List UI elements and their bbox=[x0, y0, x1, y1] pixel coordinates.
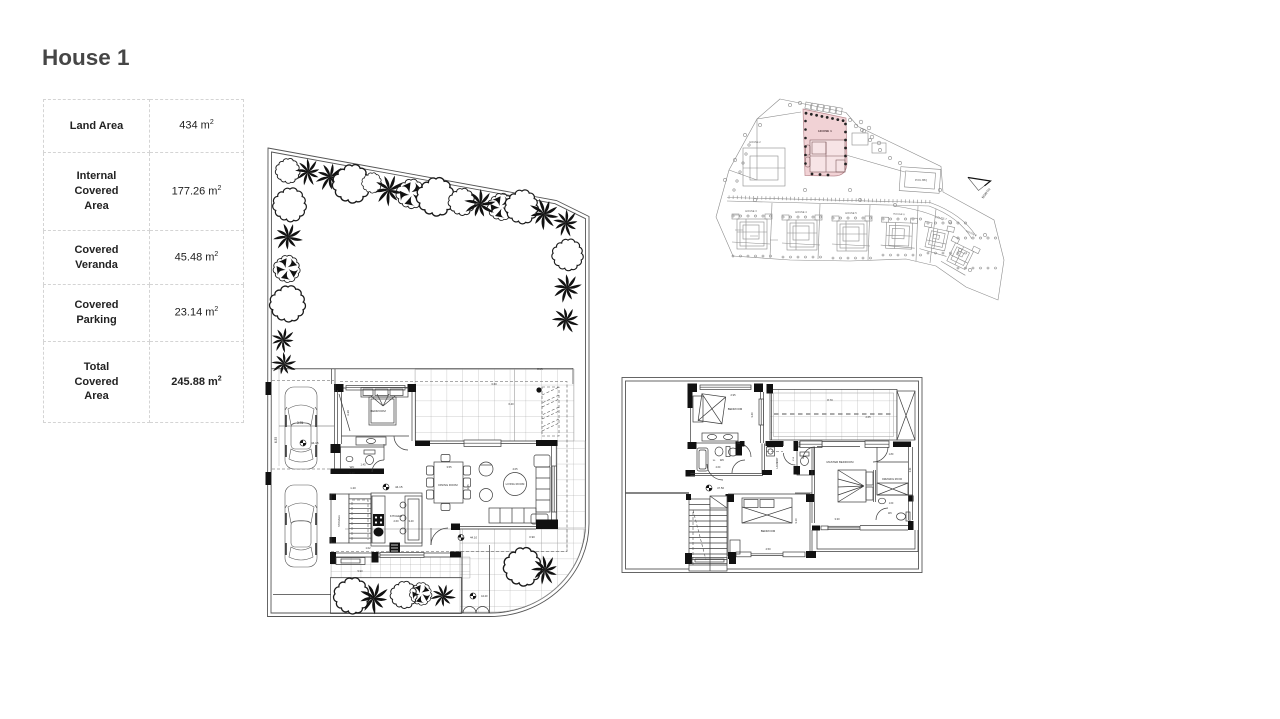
svg-text:1.45: 1.45 bbox=[360, 463, 366, 467]
svg-text:POOL BBQ: POOL BBQ bbox=[915, 179, 927, 182]
svg-text:2.95: 2.95 bbox=[730, 393, 736, 397]
svg-text:HOUSE 2: HOUSE 2 bbox=[749, 140, 761, 144]
svg-text:DINING ROOM: DINING ROOM bbox=[438, 483, 458, 487]
svg-text:44.15: 44.15 bbox=[395, 485, 403, 489]
svg-text:1.20: 1.20 bbox=[350, 486, 356, 490]
svg-text:HOUSE 3: HOUSE 3 bbox=[745, 209, 757, 213]
svg-text:1.50: 1.50 bbox=[793, 456, 795, 461]
svg-text:KITCHEN: KITCHEN bbox=[390, 514, 402, 518]
svg-text:8.70: 8.70 bbox=[827, 398, 833, 402]
svg-text:90: 90 bbox=[713, 460, 716, 462]
svg-text:HOUSE 4: HOUSE 4 bbox=[795, 210, 807, 214]
svg-text:44.20: 44.20 bbox=[481, 594, 488, 598]
svg-text:4.05: 4.05 bbox=[512, 467, 518, 471]
svg-text:HOUSE 5: HOUSE 5 bbox=[845, 211, 857, 215]
svg-text:HOUSE 1: HOUSE 1 bbox=[818, 129, 832, 133]
svg-text:3.40: 3.40 bbox=[750, 412, 754, 418]
svg-text:3.75: 3.75 bbox=[297, 421, 303, 425]
svg-text:44.10: 44.10 bbox=[470, 536, 477, 540]
svg-text:MASTER BEDROOM: MASTER BEDROOM bbox=[827, 460, 855, 464]
svg-text:3.30: 3.30 bbox=[834, 517, 840, 521]
svg-text:HOUSE 6: HOUSE 6 bbox=[893, 212, 905, 216]
svg-text:LIVING ROOM: LIVING ROOM bbox=[506, 482, 525, 486]
svg-text:2.60: 2.60 bbox=[393, 519, 399, 523]
svg-text:44.15: 44.15 bbox=[311, 441, 319, 445]
svg-text:1.02: 1.02 bbox=[365, 546, 371, 550]
svg-text:1.60: 1.60 bbox=[889, 503, 894, 505]
svg-text:0.90: 0.90 bbox=[529, 535, 535, 539]
svg-text:2.40: 2.40 bbox=[349, 471, 355, 475]
svg-text:3.55: 3.55 bbox=[446, 465, 452, 469]
svg-text:WC: WC bbox=[720, 458, 724, 462]
svg-text:HOUSE 7: HOUSE 7 bbox=[935, 215, 948, 221]
svg-text:2.40: 2.40 bbox=[910, 467, 912, 472]
svg-text:STORAGE: STORAGE bbox=[338, 515, 341, 527]
svg-text:DRESSING ROOM: DRESSING ROOM bbox=[882, 479, 902, 481]
svg-text:LAUNDRY: LAUNDRY bbox=[776, 457, 779, 468]
svg-text:3.20: 3.20 bbox=[346, 410, 350, 416]
svg-text:2.65: 2.65 bbox=[865, 415, 871, 419]
svg-text:BEDROOM: BEDROOM bbox=[728, 407, 743, 411]
svg-text:NORTH: NORTH bbox=[981, 187, 992, 199]
svg-text:47.50: 47.50 bbox=[717, 486, 724, 490]
svg-text:3.60: 3.60 bbox=[491, 382, 497, 386]
svg-text:BEDROOM: BEDROOM bbox=[370, 409, 386, 413]
svg-text:WC: WC bbox=[350, 465, 355, 469]
svg-text:3.40: 3.40 bbox=[408, 519, 414, 523]
svg-text:4.35: 4.35 bbox=[466, 484, 470, 490]
svg-text:8.05: 8.05 bbox=[537, 367, 543, 371]
svg-text:WC: WC bbox=[888, 512, 892, 515]
svg-text:6.40: 6.40 bbox=[508, 402, 514, 406]
svg-text:BEDROOM: BEDROOM bbox=[761, 529, 776, 533]
svg-text:4.50: 4.50 bbox=[765, 547, 771, 551]
svg-text:2.60: 2.60 bbox=[716, 466, 721, 469]
svg-text:1.80: 1.80 bbox=[889, 453, 894, 456]
svg-text:5.90: 5.90 bbox=[357, 569, 363, 573]
svg-text:6.35: 6.35 bbox=[274, 437, 278, 443]
svg-text:3.10: 3.10 bbox=[794, 518, 798, 524]
